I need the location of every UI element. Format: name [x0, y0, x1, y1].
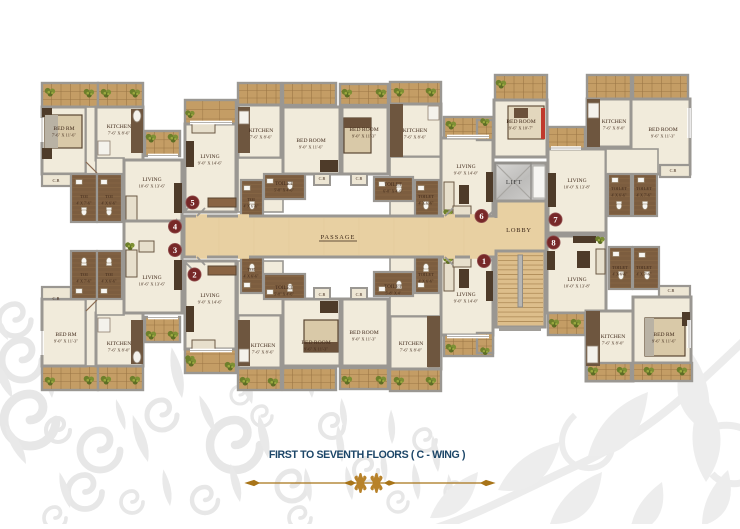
svg-text:9'-6" X 11'-6": 9'-6" X 11'-6"	[652, 339, 676, 344]
svg-text:TOILET: TOILET	[418, 194, 434, 199]
svg-text:C.B: C.B	[319, 292, 326, 297]
svg-text:5: 5	[190, 197, 194, 207]
svg-text:BED RM: BED RM	[55, 332, 76, 338]
svg-text:9'-6" X 11'-3": 9'-6" X 11'-3"	[304, 347, 328, 352]
svg-text:KITCHEN: KITCHEN	[403, 128, 428, 134]
svg-text:10'-6" X 13'-6": 10'-6" X 13'-6"	[139, 282, 166, 287]
svg-text:4' X 7'-6": 4' X 7'-6"	[77, 280, 92, 284]
svg-text:10'-6" X 13'-6": 10'-6" X 13'-6"	[139, 184, 166, 189]
svg-text:TOILET: TOILET	[612, 265, 628, 270]
svg-text:C.B: C.B	[53, 178, 60, 183]
svg-text:TOILET: TOILET	[275, 182, 292, 187]
svg-text:7'-6" X 8'-6": 7'-6" X 8'-6"	[404, 135, 426, 140]
svg-text:9'-0" X 14'-0": 9'-0" X 14'-0"	[454, 299, 479, 304]
svg-text:TOILET: TOILET	[611, 186, 627, 191]
svg-text:TOILET: TOILET	[384, 285, 401, 290]
svg-text:LOBBY: LOBBY	[506, 227, 532, 234]
svg-text:9'-0" X 11'-3": 9'-0" X 11'-3"	[54, 339, 78, 344]
svg-text:KITCHEN: KITCHEN	[249, 128, 274, 134]
svg-text:9'-0" X 14'-6": 9'-0" X 14'-6"	[198, 161, 223, 166]
svg-text:4' X 6'-6": 4' X 6'-6"	[244, 275, 259, 279]
svg-text:TOI: TOI	[247, 197, 255, 202]
svg-text:5'-8" X 4'-6": 5'-8" X 4'-6"	[274, 293, 294, 297]
svg-text:4' X 7'-6": 4' X 7'-6"	[637, 194, 652, 198]
svg-text:3: 3	[173, 245, 177, 255]
svg-text:KITCHEN: KITCHEN	[399, 341, 424, 347]
svg-text:4' X 6'-6": 4' X 6'-6"	[613, 273, 628, 277]
svg-text:10'-0" X 13'-8": 10'-0" X 13'-8"	[564, 185, 591, 190]
svg-text:BED RM: BED RM	[653, 332, 674, 338]
svg-text:1: 1	[482, 256, 486, 266]
svg-text:9'-0" X 14'-6": 9'-0" X 14'-6"	[198, 300, 223, 305]
svg-text:BED RM: BED RM	[53, 126, 74, 132]
svg-text:4' X 6'-6": 4' X 6'-6"	[419, 202, 434, 206]
svg-text:C.B: C.B	[319, 176, 326, 181]
svg-text:TOILET: TOILET	[418, 272, 434, 277]
svg-text:LIVING: LIVING	[142, 275, 161, 281]
svg-text:KITCHEN: KITCHEN	[602, 119, 627, 125]
svg-text:LIVING: LIVING	[200, 154, 219, 160]
svg-text:TOILET: TOILET	[384, 183, 401, 188]
svg-text:KITCHEN: KITCHEN	[601, 334, 626, 340]
svg-text:LIVING: LIVING	[567, 277, 586, 283]
svg-text:C.B: C.B	[53, 296, 60, 301]
svg-text:4' X 6'-6": 4' X 6'-6"	[102, 202, 117, 206]
svg-text:C.B: C.B	[356, 292, 363, 297]
svg-text:LIVING: LIVING	[142, 177, 161, 183]
svg-text:7'-6" X 8'-0": 7'-6" X 8'-0"	[108, 348, 130, 353]
svg-text:KITCHEN: KITCHEN	[107, 341, 132, 347]
svg-text:4' X 6'-6": 4' X 6'-6"	[419, 280, 434, 284]
svg-text:6'-8" X 4'-6": 6'-8" X 4'-6"	[383, 190, 403, 194]
svg-text:KITCHEN: KITCHEN	[107, 124, 132, 130]
svg-text:BED ROOM: BED ROOM	[301, 340, 330, 346]
svg-text:7'-6" X 8'-6": 7'-6" X 8'-6"	[252, 350, 274, 355]
svg-text:KITCHEN: KITCHEN	[251, 343, 276, 349]
svg-text:TOI: TOI	[80, 194, 88, 199]
svg-text:BED ROOM: BED ROOM	[296, 138, 325, 144]
svg-text:BED ROOM: BED ROOM	[506, 119, 535, 125]
svg-text:4' X 7'-6": 4' X 7'-6"	[77, 202, 92, 206]
svg-text:9'-6" X 11'-3": 9'-6" X 11'-3"	[651, 134, 675, 139]
svg-text:8: 8	[551, 237, 555, 247]
svg-text:2: 2	[192, 269, 196, 279]
svg-text:C.B: C.B	[356, 176, 363, 181]
svg-text:BED ROOM: BED ROOM	[349, 330, 378, 336]
svg-text:7'-6" X 8'-6": 7'-6" X 8'-6"	[250, 135, 272, 140]
svg-text:9'-0" X 14'-0": 9'-0" X 14'-0"	[454, 171, 479, 176]
svg-text:LIVING: LIVING	[456, 164, 475, 170]
svg-text:9'-0" X 11'-6": 9'-0" X 11'-6"	[299, 145, 323, 150]
svg-text:FIRST TO SEVENTH FLOORS ( C -: FIRST TO SEVENTH FLOORS ( C - WING )	[269, 449, 465, 461]
svg-text:C.B: C.B	[668, 288, 675, 293]
svg-text:TOILET: TOILET	[636, 265, 652, 270]
svg-text:4' X 6'-6": 4' X 6'-6"	[102, 280, 117, 284]
svg-text:BED ROOM: BED ROOM	[648, 127, 677, 133]
svg-text:7'-6" X 8'-6": 7'-6" X 8'-6"	[108, 131, 130, 136]
svg-text:BED ROOM: BED ROOM	[349, 127, 378, 133]
svg-text:4' X 6'-6": 4' X 6'-6"	[244, 205, 259, 209]
svg-text:TOI: TOI	[105, 194, 113, 199]
svg-text:LIVING: LIVING	[200, 293, 219, 299]
svg-text:TOILET: TOILET	[636, 186, 652, 191]
svg-text:10'-0" X 13'-8": 10'-0" X 13'-8"	[564, 284, 591, 289]
svg-text:5'-8" X 4'-6": 5'-8" X 4'-6"	[274, 189, 294, 193]
svg-text:9'-0" X 11'-3": 9'-0" X 11'-3"	[352, 337, 376, 342]
svg-text:9'-6" X 10'-7": 9'-6" X 10'-7"	[509, 126, 534, 131]
svg-text:C.B: C.B	[670, 168, 677, 173]
svg-text:7'-6" X 8'-0": 7'-6" X 8'-0"	[400, 348, 422, 353]
svg-text:LIVING: LIVING	[567, 178, 586, 184]
svg-text:TOI: TOI	[80, 272, 88, 277]
svg-text:6: 6	[479, 211, 483, 221]
svg-text:7'-6" X 11'-6": 7'-6" X 11'-6"	[52, 133, 76, 138]
svg-text:7'-6" X 8'-0": 7'-6" X 8'-0"	[603, 126, 625, 131]
svg-text:TOILET: TOILET	[275, 286, 292, 291]
svg-text:9'-0" X 11'-3": 9'-0" X 11'-3"	[352, 134, 376, 139]
svg-text:TOI: TOI	[247, 267, 255, 272]
svg-text:4' X 7'-6": 4' X 7'-6"	[637, 273, 652, 277]
svg-text:5'-8" X 4': 5'-8" X 4'	[386, 292, 401, 296]
svg-text:4' X 6'-6": 4' X 6'-6"	[612, 194, 627, 198]
svg-text:LIVING: LIVING	[456, 292, 475, 298]
svg-text:7'-6" X 8'-0": 7'-6" X 8'-0"	[602, 341, 624, 346]
svg-text:PASSAGE: PASSAGE	[321, 234, 356, 241]
svg-text:LIFT: LIFT	[506, 179, 522, 186]
svg-text:TOI: TOI	[105, 272, 113, 277]
